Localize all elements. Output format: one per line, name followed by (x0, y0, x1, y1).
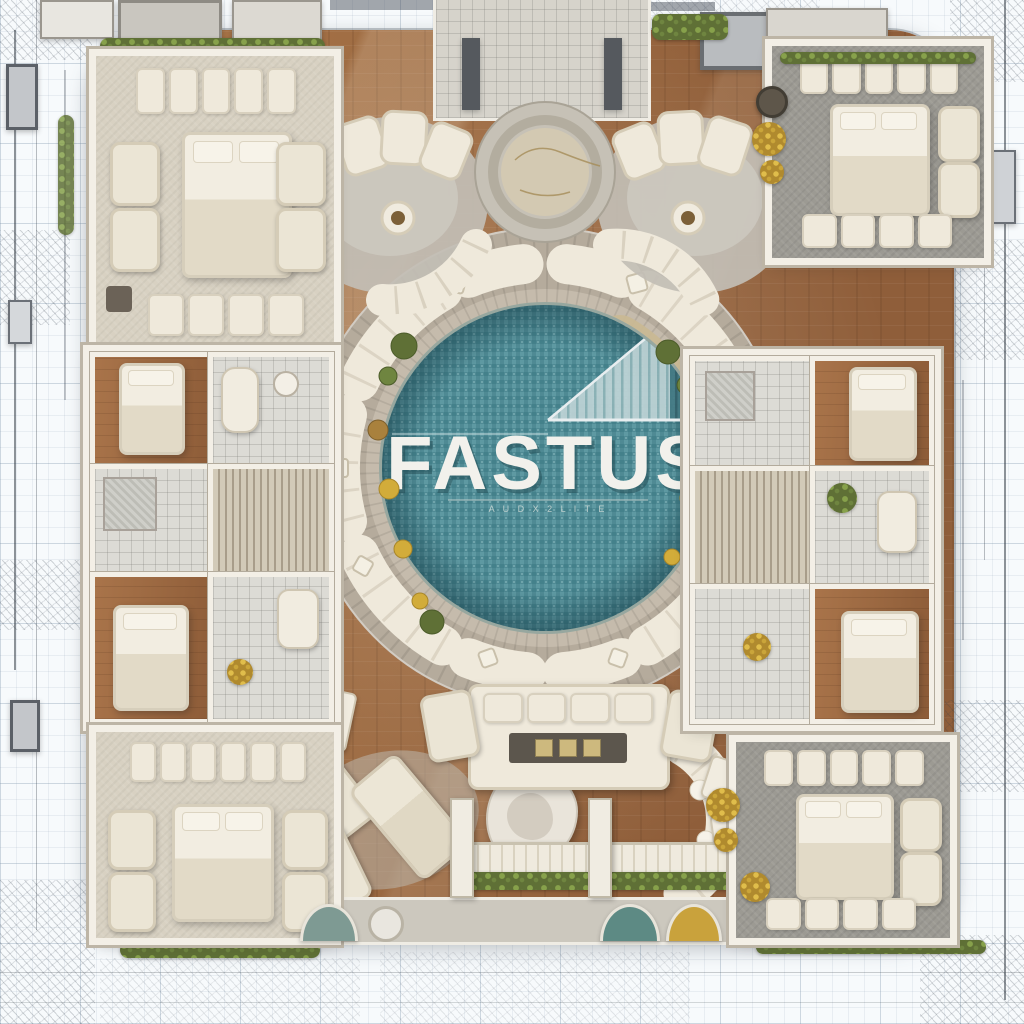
bathroom (690, 584, 820, 724)
bed-pillow (858, 374, 906, 390)
bed-pillow (881, 112, 917, 130)
bed-pillow (846, 801, 882, 818)
bed-pillow (805, 801, 841, 818)
sofa-cushion (280, 742, 306, 782)
bed (172, 804, 274, 922)
sofa-cushion (234, 68, 263, 114)
bed-pillow (123, 613, 177, 630)
sink (273, 371, 299, 397)
sofa-cushion (895, 750, 924, 786)
sketch-line (36, 0, 37, 930)
potted-plant (827, 483, 857, 513)
small-bedroom (810, 584, 934, 724)
sketch-block (6, 64, 38, 130)
sketch-block (992, 150, 1016, 224)
sofa-row (802, 214, 952, 248)
armchair (108, 872, 156, 932)
bathroom (690, 356, 820, 476)
shower (705, 371, 755, 421)
closet (690, 466, 820, 594)
armchair (276, 142, 326, 206)
sofa-cushion (160, 742, 186, 782)
armchair (938, 162, 980, 218)
bathroom (90, 464, 218, 582)
round-window (368, 906, 404, 942)
sofa-row (136, 68, 296, 114)
terrace-block (40, 0, 114, 39)
bathroom (810, 466, 934, 594)
sofa-row (766, 898, 916, 930)
sofa-cushion (805, 898, 840, 930)
sofa-cushion (188, 294, 224, 336)
armchair (108, 810, 156, 870)
bedroom-bottom-right (736, 742, 950, 938)
armchair (938, 106, 980, 162)
sofa-row (148, 294, 304, 336)
sofa-row (483, 693, 653, 723)
sofa-cushion (202, 68, 231, 114)
bedroom-bottom-left (96, 732, 334, 938)
bed (796, 794, 894, 900)
blueprint-hatch (0, 560, 80, 630)
gold-plant (740, 872, 770, 902)
small-bedroom (90, 352, 218, 474)
round-table (756, 86, 788, 118)
media-seating-group (468, 684, 670, 790)
sketch-line (0, 1002, 1024, 1003)
bed (849, 367, 917, 461)
sofa-cushion (148, 294, 184, 336)
sofa-cushion (169, 68, 198, 114)
pergola-post (588, 798, 612, 898)
sofa-cushion (614, 693, 654, 723)
bed (841, 611, 919, 713)
entry-column (462, 38, 480, 110)
stone-sculpture-core (507, 793, 553, 840)
hedge-strip (120, 942, 320, 958)
gold-plant (743, 633, 771, 661)
hedge-strip (756, 940, 986, 954)
sofa-cushion (882, 898, 917, 930)
bed-pillow (182, 812, 220, 831)
console-frame (583, 739, 601, 757)
sofa-row (764, 750, 924, 786)
bedroom-top-left (96, 56, 334, 348)
closet (208, 464, 334, 582)
hedge-strip (100, 38, 325, 54)
sofa-cushion (136, 68, 165, 114)
sofa-cushion (190, 742, 216, 782)
small-bedroom (810, 356, 934, 476)
sketch-roof-beam (330, 0, 440, 10)
sofa-row (130, 742, 306, 782)
armchair (900, 798, 942, 852)
bathtub (877, 491, 917, 553)
sofa-cushion (766, 898, 801, 930)
bed (830, 104, 930, 216)
bathroom (208, 572, 334, 724)
sofa-cushion (764, 750, 793, 786)
bed-pillow (193, 141, 233, 163)
sofa-cushion (843, 898, 878, 930)
sofa-cushion (797, 750, 826, 786)
armchair (110, 142, 160, 206)
bed (119, 363, 185, 455)
blueprint-hatch (380, 952, 690, 1024)
console-frame (535, 739, 553, 757)
sofa-cushion (918, 214, 953, 248)
armchair (276, 208, 326, 272)
sofa-cushion (130, 742, 156, 782)
armchair (282, 810, 328, 870)
hedge-strip (652, 14, 728, 40)
gold-plant (227, 659, 253, 685)
sofa-cushion (862, 750, 891, 786)
sofa-cushion (250, 742, 276, 782)
console-frame (559, 739, 577, 757)
pergola-post (450, 798, 474, 898)
sofa-cushion (527, 693, 567, 723)
entry-column (604, 38, 622, 110)
suite-left (90, 352, 334, 724)
bathtub (277, 589, 319, 649)
gold-plant (752, 122, 786, 156)
sofa-cushion (830, 750, 859, 786)
sofa-cushion (220, 742, 246, 782)
blueprint-hatch (955, 240, 1024, 360)
hedge-strip (58, 115, 74, 235)
media-console (509, 733, 627, 763)
small-bedroom (90, 572, 218, 724)
bedroom-top-right (772, 46, 984, 258)
suite-right (690, 356, 934, 724)
bathtub (221, 367, 259, 433)
sofa-cushion (267, 68, 296, 114)
bathroom (208, 352, 334, 474)
sofa-cushion (228, 294, 264, 336)
sketch-line (984, 40, 985, 560)
floorplan-render: FASTUS FASTUS A U D X 2 L I T E (0, 0, 1024, 1024)
hedge-strip (780, 52, 976, 64)
bed-pillow (225, 812, 263, 831)
sofa-cushion (483, 693, 523, 723)
sofa-cushion (570, 693, 610, 723)
sketch-block (10, 700, 40, 752)
bed-pillow (840, 112, 876, 130)
sketch-line (962, 380, 964, 640)
blueprint-hatch (100, 958, 360, 1024)
side-table (106, 286, 132, 312)
armchair (110, 208, 160, 272)
bed-pillow (128, 370, 174, 386)
gold-plant (714, 828, 738, 852)
terrace-block (232, 0, 322, 42)
sofa-cushion (268, 294, 304, 336)
shower (103, 477, 157, 531)
bed-pillow (851, 619, 907, 636)
bed (113, 605, 189, 711)
stone-walkway-top (506, 112, 582, 274)
sofa-cushion (879, 214, 914, 248)
sofa-cushion (841, 214, 876, 248)
blueprint-hatch (945, 700, 1024, 792)
sketch-block (8, 300, 32, 344)
gold-plant (760, 160, 784, 184)
bed-pillow (239, 141, 279, 163)
sofa-cushion (802, 214, 837, 248)
gold-plant (706, 788, 740, 822)
sketch-line (0, 972, 1024, 973)
